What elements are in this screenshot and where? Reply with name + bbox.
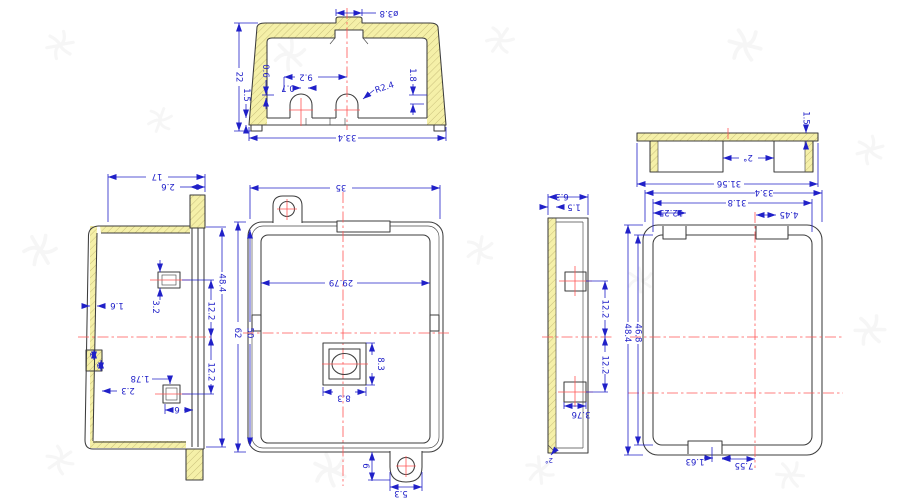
dim-section-width: 33.4 xyxy=(338,132,357,142)
top-boss xyxy=(337,221,390,232)
dim-side-height: 48.4 xyxy=(217,274,227,293)
dim-channel-width: 33.4 xyxy=(755,187,774,197)
dim-tab-width: 5.3 xyxy=(394,488,408,498)
dim-section-height: 22 xyxy=(234,72,244,83)
dim-edge-lower-offset: 12.2 xyxy=(600,356,610,375)
dim-channel-height: 48.4 xyxy=(622,324,632,343)
dim-boss-diameter: ø3.8 xyxy=(380,8,399,18)
paper-background xyxy=(0,0,900,500)
bottom-slot-clear xyxy=(688,441,722,450)
dim-section-step-left: 0.6 xyxy=(260,64,270,78)
dim-section-step-right: 1.8 xyxy=(407,68,417,82)
dim-bump-offset: 0.7 xyxy=(281,83,295,93)
dim-lower-offset: 12.2 xyxy=(206,363,216,382)
dim-clip-offset: 6 xyxy=(174,404,179,414)
dim-notch-a: 2 xyxy=(88,353,96,357)
edge-wall-hatch xyxy=(548,218,556,453)
dim-front-width: 35 xyxy=(336,182,347,192)
top-mount-tab xyxy=(273,196,302,223)
wall-hatch-left xyxy=(650,141,658,172)
dim-notch-width: 1.63 xyxy=(686,456,705,466)
dim-notch-offset: 7.55 xyxy=(735,460,754,470)
dim-channel-inner-height: 46.8 xyxy=(633,324,643,343)
dim-edge-upper-offset: 12.2 xyxy=(600,300,610,319)
dim-edge-depth: 6.3 xyxy=(555,191,569,201)
cad-drawing-page: ø3.8 22 1.5 0.6 9.2 0.7 R2.4 1.8 xyxy=(0,0,900,500)
dim-wall-thickness: 1.6 xyxy=(110,300,124,310)
plate-hatch xyxy=(637,133,818,141)
dim-clip-height: 3.2 xyxy=(150,300,160,314)
dim-edge-draft: 2° xyxy=(545,456,553,464)
dim-plate-thickness: 1.5 xyxy=(801,111,811,125)
technical-drawing-canvas: ø3.8 22 1.5 0.6 9.2 0.7 R2.4 1.8 xyxy=(0,0,900,500)
dim-plate-width: 31.56 xyxy=(717,178,741,188)
dim-boss-width: 8.3 xyxy=(337,393,351,403)
dim-upper-offset: 12.2 xyxy=(206,302,216,321)
dim-bump-spacing: 9.2 xyxy=(299,72,313,82)
dim-section-rim: 1.5 xyxy=(241,88,251,102)
dim-front-inner-height: 50 xyxy=(245,328,255,339)
dim-boss-height: 8.3 xyxy=(375,357,385,371)
dim-edge-wall: 1.5 xyxy=(567,202,581,212)
dim-front-inner-width: 29.79 xyxy=(329,277,353,287)
dim-notch-b: 2 xyxy=(95,364,103,368)
dim-side-depth: 17 xyxy=(152,171,163,181)
bottom-tab-hatch xyxy=(186,449,203,480)
dim-draft-angle: 2° xyxy=(743,152,753,162)
dim-tab-height: 6 xyxy=(360,463,370,468)
dim-clip-width: 1.78 xyxy=(131,373,150,383)
dim-slot-right: 4.45 xyxy=(780,209,799,219)
dim-front-height: 62 xyxy=(232,328,242,339)
dim-tab-thickness: 2.6 xyxy=(161,181,175,191)
dim-edge-clip-width: 3.76 xyxy=(572,409,591,419)
dim-channel-inner-width: 31.8 xyxy=(728,197,747,207)
dim-notch-offset: 2.3 xyxy=(121,385,135,395)
top-tab-hatch xyxy=(190,195,205,228)
dim-slot-left: 12.25 xyxy=(659,207,683,217)
